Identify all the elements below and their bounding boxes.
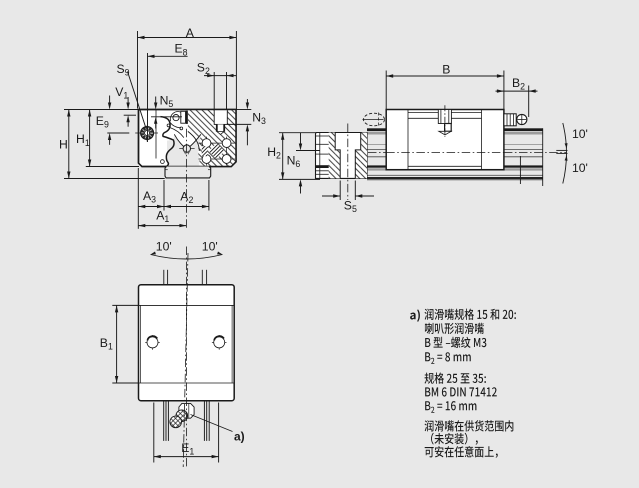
svg-text:10': 10' [156, 240, 172, 254]
svg-text:10': 10' [572, 161, 588, 175]
svg-text:a): a) [234, 430, 245, 444]
svg-text:H: H [59, 138, 68, 152]
svg-text:10': 10' [202, 240, 218, 254]
svg-text:A: A [186, 26, 195, 40]
svg-text:B: B [442, 63, 450, 77]
svg-text:10': 10' [572, 127, 588, 141]
